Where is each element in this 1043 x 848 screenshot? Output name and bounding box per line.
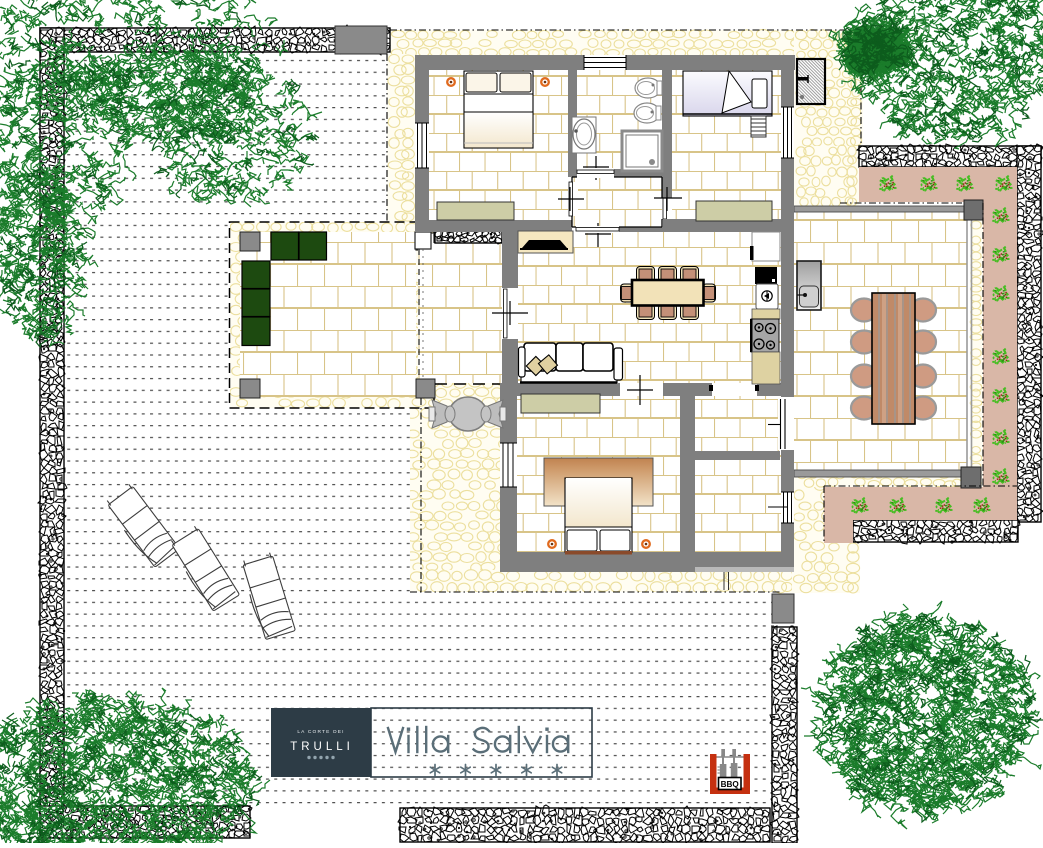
- svg-text:LA CORTE DEI: LA CORTE DEI: [297, 729, 344, 735]
- svg-text:BBQ: BBQ: [721, 780, 740, 789]
- svg-text:TRULLI: TRULLI: [290, 741, 354, 753]
